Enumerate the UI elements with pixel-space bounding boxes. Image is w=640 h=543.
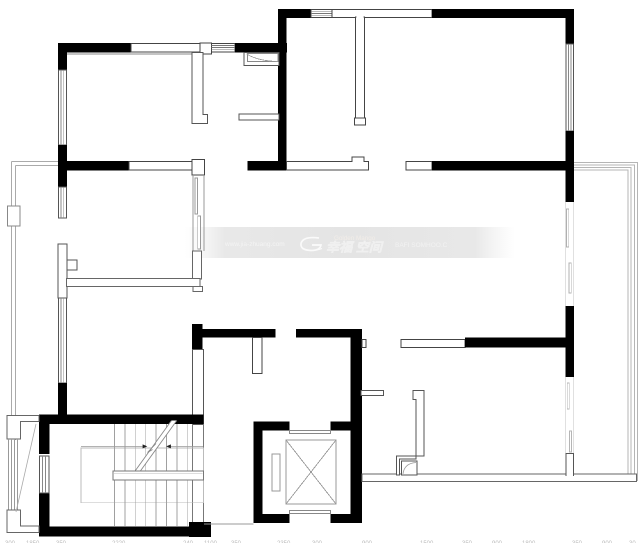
svg-text:www.jia-zhuang.com: www.jia-zhuang.com xyxy=(224,241,285,248)
svg-text:BAFI SOMHOO.C: BAFI SOMHOO.C xyxy=(395,242,448,249)
svg-text:幸福 空间: 幸福 空间 xyxy=(326,241,385,255)
